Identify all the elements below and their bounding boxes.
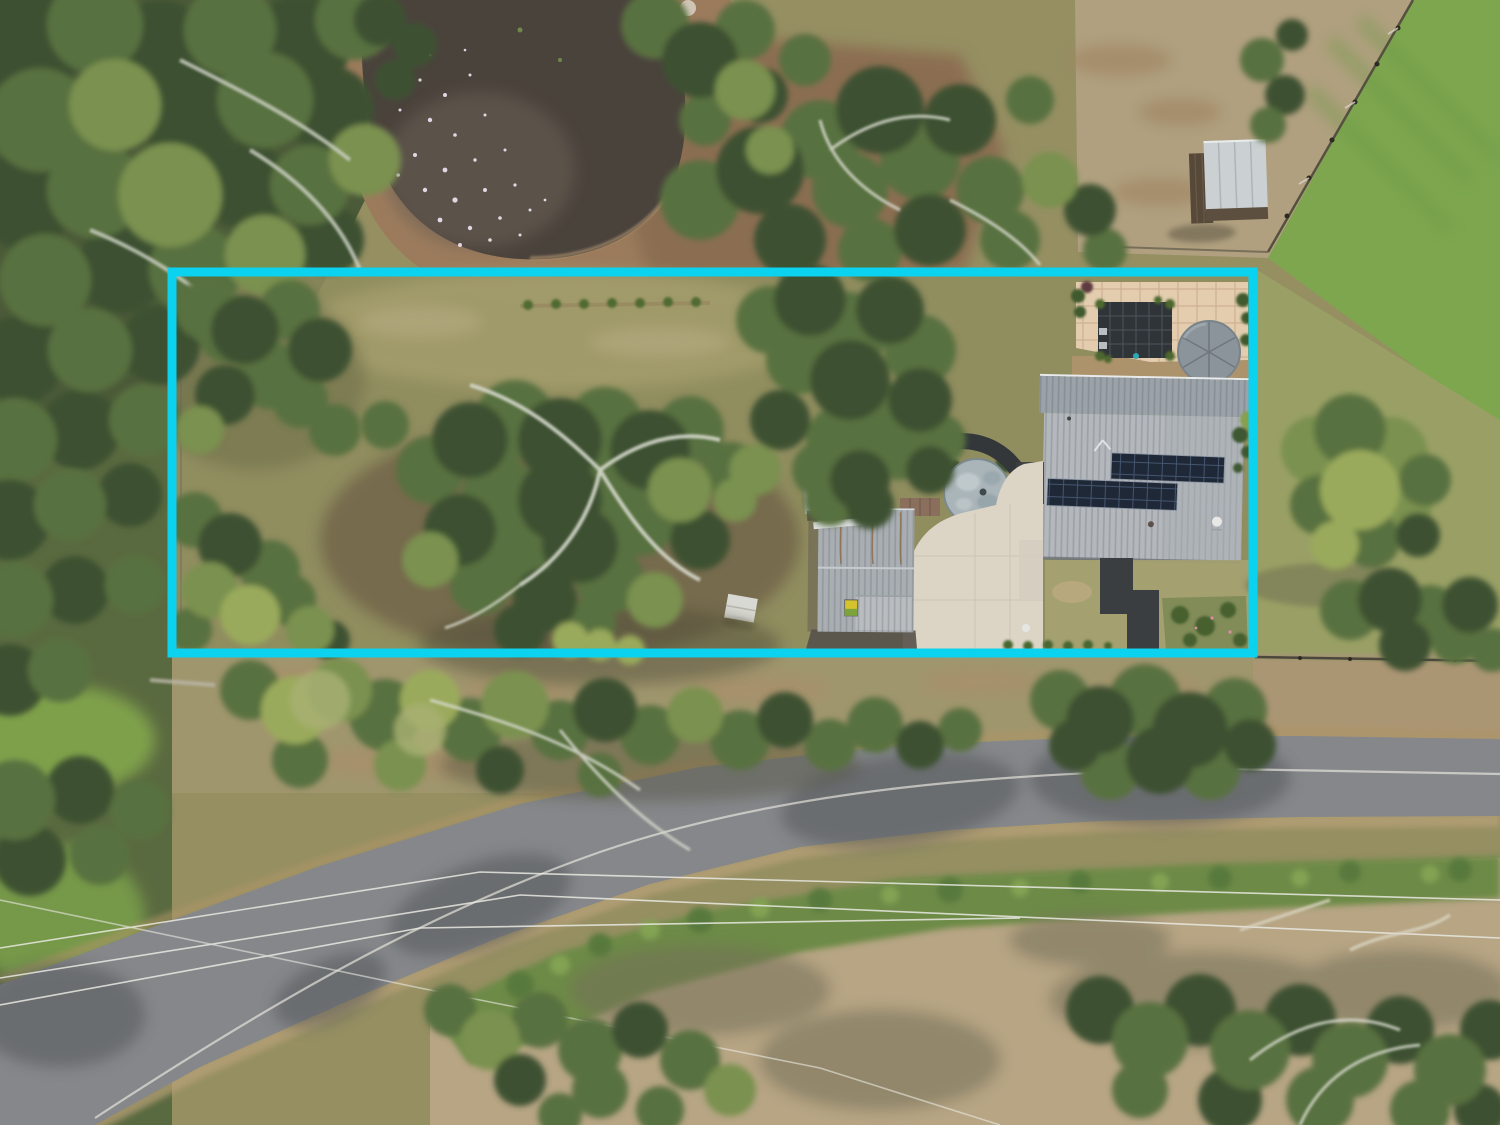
garage bbox=[805, 507, 918, 652]
aerial-photo-canvas bbox=[0, 0, 1500, 1125]
aerial-photo bbox=[0, 0, 1500, 1125]
house bbox=[1036, 375, 1250, 562]
tree-single-midfield bbox=[361, 401, 409, 449]
